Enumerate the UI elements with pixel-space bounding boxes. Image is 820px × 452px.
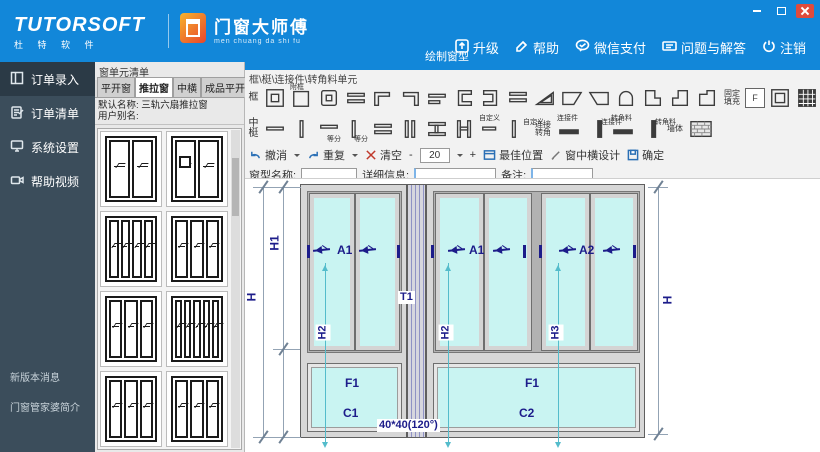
sidebar-item-order-entry[interactable]: 订单录入 <box>0 62 95 96</box>
trapezoid-mid-profile-icon[interactable] <box>559 84 584 112</box>
sidebar-item-label: 订单清单 <box>31 105 79 122</box>
wechat-pay-icon <box>575 39 590 56</box>
frame-square-profile-icon[interactable] <box>262 84 287 112</box>
window-unit-right <box>426 184 645 438</box>
frame-row-label: 框 <box>247 93 260 103</box>
drawing-label-h1: H1 <box>269 235 281 250</box>
help-icon <box>515 39 529 56</box>
sliding-section <box>433 191 640 353</box>
drawing-tick <box>539 245 542 258</box>
fixed-f-label: F <box>752 93 758 103</box>
frame-profile-row: 框 附框 固定填充 F <box>247 83 819 113</box>
drawing-label-f1: F1 <box>345 377 359 389</box>
sidebar-footer: 新版本消息 门窗管家婆简介 <box>10 364 80 424</box>
help-button[interactable]: 帮助 <box>515 38 559 57</box>
logout-button[interactable]: 注销 <box>762 38 806 57</box>
cross-mullion-horizontal-icon[interactable] <box>424 115 449 143</box>
drawing-label-t1: T1 <box>398 291 415 304</box>
sidebar-item-help-videos[interactable]: 帮助视频 <box>0 164 95 198</box>
default-name-value: 三轨六扇推拉窗 <box>141 100 208 111</box>
zoom-in-button[interactable]: + <box>470 149 476 161</box>
window-template-thumbnail[interactable] <box>100 211 162 287</box>
drawing-label-c2: C2 <box>519 407 534 419</box>
fixed-glass-icon[interactable] <box>767 84 792 112</box>
trapezoid-right-profile-icon[interactable] <box>586 84 611 112</box>
brand-logo: TUTORSOFT 杜 特 软 件 <box>14 14 145 51</box>
action-bar: 撤消 重复 清空 - 20 + 最佳位置 窗中横设计 确定 <box>249 146 664 164</box>
frame-corner-tl-icon[interactable] <box>370 84 395 112</box>
corner-material-label: 转角料 <box>655 119 663 126</box>
group-mullion <box>533 194 540 350</box>
window-template-thumbnail[interactable] <box>166 291 228 367</box>
brand-subtitle: 杜 特 软 件 <box>14 38 145 51</box>
sidebar-item-label: 订单录入 <box>31 71 79 88</box>
corner-material-label: 转角料 <box>611 115 632 122</box>
frame-double-bar-icon[interactable] <box>343 84 368 112</box>
drawing-tick <box>523 245 526 258</box>
connector-label: 连接件 <box>557 115 578 122</box>
sliding-sash <box>591 194 638 350</box>
zoom-value: 20 <box>429 150 440 161</box>
drawing-tick <box>633 245 636 258</box>
window-unit-left <box>300 184 407 438</box>
drawing-vline <box>263 187 264 437</box>
equal-split-label: 等分 <box>354 136 368 143</box>
top-menu: 升级 帮助 微信支付 问题与解答 注销 <box>455 38 806 57</box>
l-profile-1-icon[interactable] <box>640 84 665 112</box>
frame-bracket-right-icon[interactable] <box>478 84 503 112</box>
trapezoid-left-profile-icon[interactable] <box>532 84 557 112</box>
blue-strip <box>245 62 820 70</box>
dark-grid-panel-icon[interactable] <box>794 84 819 112</box>
unit-type-tabs: 平开窗 推拉窗 中横 成品平开窗 <box>95 80 244 98</box>
window-template-thumbnail[interactable] <box>166 211 228 287</box>
redo-button[interactable]: 重复 <box>307 147 345 163</box>
drawing-canvas[interactable]: HH1HH2H2H3T1A1A1A2F1F1C1C240*40(120°) <box>245 178 820 452</box>
wall-label[interactable]: 墙体 <box>667 125 683 133</box>
clear-label: 清空 <box>380 147 402 163</box>
help-videos-icon <box>10 173 24 190</box>
wall-brick-icon[interactable] <box>688 115 713 143</box>
order-list-icon <box>10 105 24 122</box>
equal-split-horizontal-icon[interactable]: 等分 <box>316 115 341 143</box>
window-controls <box>748 4 814 18</box>
double-mullion-vertical-icon[interactable] <box>397 115 422 143</box>
fixed-f-box-icon[interactable]: F <box>745 88 765 108</box>
drawing-vline <box>658 187 659 434</box>
cross-mullion-vertical-icon[interactable] <box>451 115 476 143</box>
window-template-thumbnail[interactable] <box>166 131 228 207</box>
corner-material-horizontal-icon[interactable]: 转角料 <box>610 115 635 143</box>
drawing-hline <box>273 349 300 350</box>
arch-profile-icon[interactable] <box>613 84 638 112</box>
system-settings-icon <box>10 139 24 156</box>
drawing-label-a1: A1 <box>469 244 484 256</box>
best-position-label: 最佳位置 <box>499 147 543 163</box>
upgrade-label: 升级 <box>473 38 499 57</box>
window-template-thumbnail[interactable] <box>100 371 162 447</box>
mullion-profile-row: 中梃 等分 等分 自定义 自定义 连接转角 连接件 连接件 转角料 转角料 墙体 <box>247 114 713 144</box>
l-profile-3-icon[interactable] <box>694 84 719 112</box>
mid-rail-design-label: 窗中横设计 <box>565 147 620 163</box>
wechat-pay-button[interactable]: 微信支付 <box>575 38 646 57</box>
frame-bar-icon[interactable] <box>424 84 449 112</box>
sliding-sash <box>356 194 400 350</box>
zoom-out-button[interactable]: - <box>409 149 413 161</box>
template-grid <box>100 131 229 450</box>
fixed-fill-label[interactable]: 固定填充 <box>724 90 740 106</box>
window-template-thumbnail[interactable] <box>100 291 162 367</box>
zoom-dropdown-caret[interactable] <box>457 154 463 160</box>
maximize-button[interactable] <box>772 4 790 18</box>
confirm-button[interactable]: 确定 <box>627 147 664 163</box>
tab-casement[interactable]: 平开窗 <box>97 77 135 97</box>
frame-corner-profile-icon[interactable] <box>316 84 341 112</box>
redo-label: 重复 <box>323 147 345 163</box>
drawing-label-c1: C1 <box>343 407 358 419</box>
sidebar: 订单录入 订单清单 系统设置 帮助视频 新版本消息 门窗管家婆简介 <box>0 62 95 452</box>
default-name-label: 默认名称: <box>98 100 139 111</box>
undo-button[interactable]: 撤消 <box>249 147 287 163</box>
sliding-sash <box>485 194 532 350</box>
best-position-button[interactable]: 最佳位置 <box>483 147 543 163</box>
frame-bracket-left-icon[interactable] <box>451 84 476 112</box>
custom-mullion-horizontal-icon[interactable]: 自定义 <box>478 115 503 143</box>
t1-connector <box>407 184 426 438</box>
drawing-label-40-40-120-: 40*40(120°) <box>377 419 440 432</box>
sidebar-item-order-list[interactable]: 订单清单 <box>0 96 95 130</box>
minimize-button[interactable] <box>748 4 766 18</box>
mullion-vertical-icon[interactable] <box>289 115 314 143</box>
drawing-tick <box>397 245 400 258</box>
product-pinyin: men chuang da shi fu <box>214 38 309 45</box>
drawing-label-a2: A2 <box>579 244 594 256</box>
close-button[interactable] <box>796 4 814 18</box>
housekeeper-intro-link[interactable]: 门窗管家婆简介 <box>10 394 80 424</box>
template-scrollbar[interactable] <box>231 130 240 448</box>
help-label: 帮助 <box>533 38 559 57</box>
logout-power-icon <box>762 39 776 56</box>
product-name: 门窗大师傅 <box>214 13 309 38</box>
custom-label: 自定义 <box>479 115 500 122</box>
drawing-cyan <box>325 263 326 445</box>
sidebar-item-system-settings[interactable]: 系统设置 <box>0 130 95 164</box>
divider <box>168 14 169 48</box>
drawing-label-h: H <box>661 296 673 305</box>
attached-frame-profile-icon[interactable]: 附框 <box>289 84 314 112</box>
qa-label: 问题与解答 <box>681 38 746 57</box>
mullion-row-label: 中梃 <box>247 119 260 139</box>
drawing-vline <box>283 187 284 437</box>
window-template-thumbnail[interactable] <box>166 371 228 447</box>
product-title: 门窗大师傅 men chuang da shi fu <box>214 13 309 45</box>
qa-button[interactable]: 问题与解答 <box>662 38 746 57</box>
l-profile-2-icon[interactable] <box>667 84 692 112</box>
brand-name: TUTORSOFT <box>14 14 145 37</box>
corner-material-vertical-icon[interactable]: 转角料 <box>637 115 662 143</box>
drawing-cyan <box>448 263 449 445</box>
wechat-pay-label: 微信支付 <box>594 38 646 57</box>
drawing-label-h3: H3 <box>549 324 564 340</box>
title-bar: TUTORSOFT 杜 特 软 件 门窗大师傅 men chuang da sh… <box>0 0 820 62</box>
window-template-thumbnail[interactable] <box>100 131 162 207</box>
sidebar-item-label: 系统设置 <box>31 139 79 156</box>
drawing-label-f1: F1 <box>525 377 539 389</box>
drawing-tick <box>431 245 434 258</box>
main-area: 框\梃\连接件\转角料单元 框 附框 固定填充 F 中梃 等分 等分 <box>245 62 820 452</box>
attached-frame-label: 附框 <box>290 84 304 91</box>
drawing-label-h2: H2 <box>439 324 454 340</box>
drawing-label-a1: A1 <box>337 244 352 256</box>
new-version-link[interactable]: 新版本消息 <box>10 364 80 394</box>
window-unit-panel: 窗单元清单 平开窗 推拉窗 中横 成品平开窗 默认名称: 三轨六扇推拉窗 用户别… <box>95 62 245 452</box>
mid-rail-design-button[interactable]: 窗中横设计 <box>550 147 620 163</box>
connector-horizontal-icon[interactable]: 连接件 <box>556 115 581 143</box>
product-logo-icon <box>180 13 206 43</box>
sidebar-item-label: 帮助视频 <box>31 173 79 190</box>
custom-label: 自定义 <box>523 119 531 126</box>
connector-label: 连接件 <box>601 119 609 126</box>
clear-button[interactable]: 清空 <box>365 147 402 163</box>
equal-split-label: 等分 <box>327 136 341 143</box>
alias-label: 用户别名: <box>98 111 139 122</box>
mullion-horizontal-icon[interactable] <box>262 115 287 143</box>
redo-dropdown-caret[interactable] <box>352 154 358 160</box>
default-name-block: 默认名称: 三轨六扇推拉窗 用户别名: <box>95 98 244 125</box>
zoom-value-box[interactable]: 20 <box>420 148 450 163</box>
confirm-label: 确定 <box>642 147 664 163</box>
logout-label: 注销 <box>780 38 806 57</box>
drawing-tick <box>307 245 310 258</box>
tab-sliding[interactable]: 推拉窗 <box>135 77 173 97</box>
double-mullion-horizontal-icon[interactable] <box>370 115 395 143</box>
qa-icon <box>662 39 677 56</box>
connector-vertical-icon[interactable]: 连接件 <box>583 115 608 143</box>
undo-dropdown-caret[interactable] <box>294 154 300 160</box>
tab-transom[interactable]: 中横 <box>173 77 201 97</box>
custom-mullion-vertical-icon[interactable]: 自定义 <box>505 115 530 143</box>
drawing-label-h: H <box>245 293 257 302</box>
drawing-cyan <box>558 263 559 445</box>
frame-double-bar2-icon[interactable] <box>505 84 530 112</box>
order-entry-icon <box>10 71 24 88</box>
template-list <box>97 128 242 450</box>
frame-corner-tr-icon[interactable] <box>397 84 422 112</box>
fixed-pane <box>433 363 640 432</box>
drawing-label-h2: H2 <box>316 324 331 340</box>
equal-split-vertical-icon[interactable]: 等分 <box>343 115 368 143</box>
undo-label: 撤消 <box>265 147 287 163</box>
